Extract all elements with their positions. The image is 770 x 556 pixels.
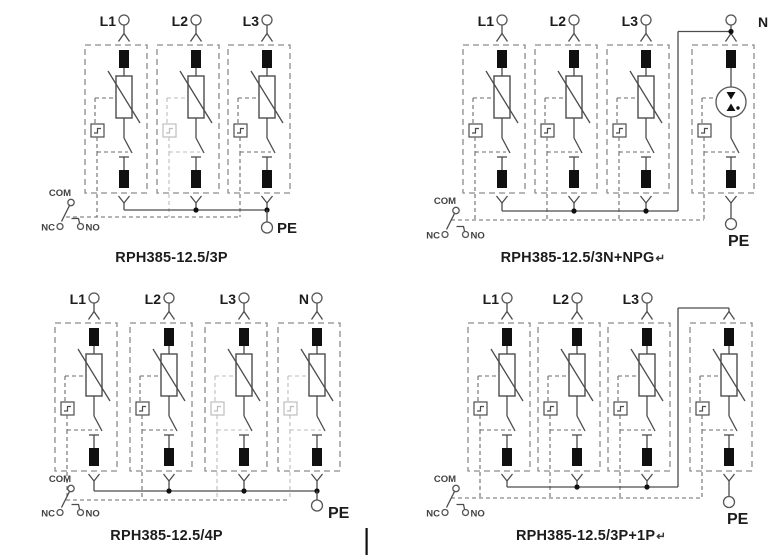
junction-dot (241, 488, 246, 493)
nc-label: NC (426, 231, 440, 242)
varistor-symbol (180, 68, 212, 138)
clamp-terminal (726, 170, 736, 188)
clamp-terminal (119, 50, 129, 68)
clamp-terminal (572, 328, 582, 346)
line-terminal: L2 (550, 13, 579, 34)
diagram-title: RPH385-12.5/3P+1P↵ (516, 528, 666, 544)
line-terminal: L1 (70, 291, 99, 312)
earth-bus-wire (507, 481, 678, 490)
module-N: N (692, 14, 768, 220)
pe-circle (726, 219, 737, 230)
com-label: COM (49, 188, 71, 199)
terminal-circle (312, 293, 322, 303)
disconnect-switch (642, 416, 655, 448)
gdt-symbol (716, 68, 746, 138)
clamp-terminal (502, 448, 512, 466)
diagram-title: RPH385-12.5/4P (110, 528, 223, 544)
varistor-symbol (251, 68, 283, 138)
terminal-label: L3 (220, 291, 237, 307)
line-terminal: L3 (623, 291, 652, 312)
disconnect-switch (164, 416, 177, 448)
terminal-circle (726, 15, 736, 25)
status-indicator-icon (698, 124, 711, 137)
status-indicator-icon (696, 402, 709, 415)
varistor-symbol (561, 346, 593, 416)
nc-contact (57, 510, 63, 516)
terminal-circle (262, 15, 272, 25)
module-L1: L1 (55, 291, 117, 500)
module-L2: L2 (130, 291, 192, 500)
clamp-terminal (569, 50, 579, 68)
no-contact (78, 510, 84, 516)
no-label: NO (471, 231, 485, 242)
status-indicator-icon (61, 402, 74, 415)
line-terminal: L2 (172, 13, 201, 34)
disconnect-switch (89, 416, 102, 448)
com-contact (68, 485, 74, 491)
clamp-terminal (312, 328, 322, 346)
pe-terminal: PE (724, 481, 749, 528)
junction-dot (643, 208, 648, 213)
varistor-symbol (491, 346, 523, 416)
clamp-terminal (191, 50, 201, 68)
junction-dot (574, 484, 579, 489)
disconnect-switch (191, 138, 204, 170)
varistor-symbol (228, 346, 260, 416)
status-indicator-icon (544, 402, 557, 415)
varistor-symbol (558, 68, 590, 138)
text-cursor-artifact (366, 528, 368, 555)
varistor-symbol (630, 68, 662, 138)
paragraph-mark: ↵ (656, 253, 666, 265)
module-aux (690, 312, 752, 499)
clamp-terminal (641, 170, 651, 188)
junction-dot (728, 29, 733, 34)
status-indicator-icon (284, 402, 297, 415)
terminal-circle (497, 15, 507, 25)
schematic-canvas: L1L2L3NPECOMNCNO (385, 0, 770, 278)
varistor-symbol (486, 68, 518, 138)
disconnect-switch (502, 416, 515, 448)
clamp-terminal (239, 328, 249, 346)
pe-terminal: PE (726, 203, 750, 250)
clamp-terminal (119, 170, 129, 188)
line-terminal: L3 (622, 13, 651, 34)
no-label: NO (86, 509, 100, 520)
pe-label: PE (728, 233, 750, 250)
disconnect-switch (312, 416, 325, 448)
terminal-label: L2 (550, 13, 567, 29)
disconnect-switch (262, 138, 275, 170)
module-L1: L1 (468, 291, 530, 498)
pe-terminal: PE (262, 210, 298, 237)
line-terminal: L2 (553, 291, 582, 312)
terminal-circle (89, 293, 99, 303)
disconnect-switch (119, 138, 132, 170)
varistor-symbol (108, 68, 140, 138)
terminal-label: L3 (623, 291, 640, 307)
terminal-label: L2 (553, 291, 570, 307)
clamp-terminal (724, 328, 734, 346)
varistor-symbol (631, 346, 663, 416)
schematic-canvas: L1L2L3NPECOMNCNO (0, 278, 385, 556)
remote-contact-switch: COMNCNO (426, 196, 484, 242)
diagram-rph385-12-5-3p-1p: L1L2L3PECOMNCNO RPH385-12.5/3P+1P↵ (385, 278, 770, 556)
disconnect-switch (497, 138, 510, 170)
no-label: NO (471, 509, 485, 520)
com-label: COM (434, 196, 456, 207)
neutral-feed-wire (678, 308, 729, 487)
varistor-symbol (78, 346, 110, 416)
no-contact (463, 232, 469, 238)
status-indicator-icon (211, 402, 224, 415)
com-label: COM (49, 474, 71, 485)
neutral-feed-wire (678, 29, 734, 211)
nc-contact (442, 510, 448, 516)
status-indicator-icon (474, 402, 487, 415)
title-text: RPH385-12.5/3N+NPG (501, 250, 655, 266)
terminal-label: L2 (172, 13, 189, 29)
paragraph-mark: ↵ (656, 531, 666, 543)
nc-label: NC (41, 223, 55, 234)
module-outline (692, 45, 754, 193)
diagram-title: RPH385-12.5/3P (115, 250, 228, 266)
terminal-circle (569, 15, 579, 25)
terminal-circle (502, 293, 512, 303)
clamp-terminal (502, 328, 512, 346)
clamp-terminal (497, 170, 507, 188)
title-text: RPH385-12.5/3P+1P (516, 528, 655, 544)
clamp-terminal (726, 50, 736, 68)
diagram-rph385-12-5-3n-npg: L1L2L3NPECOMNCNO RPH385-12.5/3N+NPG↵ (385, 0, 770, 278)
line-terminal: N (299, 291, 322, 312)
status-indicator-icon (163, 124, 176, 137)
pe-label: PE (277, 220, 297, 237)
junction-dot (193, 207, 198, 212)
nc-contact (57, 224, 63, 230)
com-label: COM (434, 474, 456, 485)
earth-bus-wire (124, 203, 270, 213)
clamp-terminal (191, 170, 201, 188)
terminal-label: L3 (243, 13, 260, 29)
disconnect-switch (641, 138, 654, 170)
clamp-terminal (642, 448, 652, 466)
diagram-title: RPH385-12.5/3N+NPG↵ (501, 250, 666, 266)
terminal-circle (191, 15, 201, 25)
remote-contact-switch: COMNCNO (426, 474, 484, 520)
varistor-symbol (713, 346, 745, 416)
varistor-symbol (153, 346, 185, 416)
clamp-terminal (262, 50, 272, 68)
status-indicator-icon (614, 402, 627, 415)
nc-contact (442, 232, 448, 238)
pe-terminal: PE (312, 491, 350, 522)
pe-circle (312, 500, 323, 511)
clamp-terminal (164, 328, 174, 346)
module-L3: L3 (205, 291, 267, 500)
earth-bus-wire (502, 203, 678, 214)
disconnect-switch (239, 416, 252, 448)
clamp-terminal (572, 448, 582, 466)
com-contact (453, 207, 459, 213)
line-terminal: L1 (478, 13, 507, 34)
disconnect-switch (724, 416, 737, 448)
module-L3: L3 (607, 13, 669, 220)
module-L1: L1 (463, 13, 525, 220)
junction-dot (571, 208, 576, 213)
module-L3: L3 (608, 291, 670, 498)
terminal-label: L2 (145, 291, 162, 307)
line-terminal: L1 (100, 13, 129, 34)
status-indicator-icon (469, 124, 482, 137)
pe-label: PE (727, 511, 749, 528)
line-terminal: L3 (243, 13, 272, 34)
clamp-terminal (497, 50, 507, 68)
nc-label: NC (426, 509, 440, 520)
clamp-terminal (312, 448, 322, 466)
module-L1: L1 (85, 13, 147, 217)
pe-label: PE (328, 505, 350, 522)
com-contact (453, 485, 459, 491)
clamp-terminal (641, 50, 651, 68)
status-indicator-icon (91, 124, 104, 137)
no-label: NO (86, 223, 100, 234)
remote-contact-switch: COMNCNO (41, 474, 99, 520)
status-indicator-icon (613, 124, 626, 137)
wiring-diagrams-sheet: L1L2L3PECOMNCNO RPH385-12.5/3P L1L2L3NPE… (0, 0, 770, 556)
title-text: RPH385-12.5/4P (110, 528, 222, 544)
clamp-terminal (642, 328, 652, 346)
pe-circle (724, 497, 735, 508)
disconnect-switch (569, 138, 582, 170)
terminal-label: L1 (70, 291, 87, 307)
clamp-terminal (262, 170, 272, 188)
disconnect-switch (572, 416, 585, 448)
module-L2: L2 (157, 13, 219, 217)
disconnect-switch (726, 138, 739, 170)
no-contact (78, 224, 84, 230)
clamp-terminal (724, 448, 734, 466)
terminal-circle (572, 293, 582, 303)
line-terminal: L2 (145, 291, 174, 312)
terminal-label: L1 (478, 13, 495, 29)
clamp-terminal (89, 328, 99, 346)
clamp-terminal (164, 448, 174, 466)
schematic-canvas: L1L2L3PECOMNCNO (0, 0, 385, 278)
module-L2: L2 (538, 291, 600, 498)
terminal-circle (239, 293, 249, 303)
schematic-canvas: L1L2L3PECOMNCNO (385, 278, 770, 556)
remote-contact-switch: COMNCNO (41, 188, 99, 234)
clamp-terminal (89, 448, 99, 466)
junction-dot (644, 484, 649, 489)
terminal-circle (119, 15, 129, 25)
terminal-label: N (299, 291, 309, 307)
nc-label: NC (41, 509, 55, 520)
clamp-terminal (239, 448, 249, 466)
line-terminal: L1 (483, 291, 512, 312)
diagram-rph385-12-5-3p: L1L2L3PECOMNCNO RPH385-12.5/3P (0, 0, 385, 278)
earth-bus-wire (94, 481, 320, 494)
varistor-symbol (301, 346, 333, 416)
diagram-rph385-12-5-4p: L1L2L3NPECOMNCNO RPH385-12.5/4P (0, 278, 385, 556)
clamp-terminal (569, 170, 579, 188)
terminal-label: L3 (622, 13, 639, 29)
junction-dot (166, 488, 171, 493)
terminal-label: L1 (100, 13, 117, 29)
line-terminal: L3 (220, 291, 249, 312)
module-L3: L3 (228, 13, 290, 217)
terminal-circle (642, 293, 652, 303)
terminal-label: N (758, 14, 768, 30)
module-L2: L2 (535, 13, 597, 220)
status-indicator-icon (234, 124, 247, 137)
terminal-circle (641, 15, 651, 25)
com-contact (68, 199, 74, 205)
module-N: N (278, 291, 340, 500)
status-indicator-icon (541, 124, 554, 137)
no-contact (463, 510, 469, 516)
terminal-circle (164, 293, 174, 303)
title-text: RPH385-12.5/3P (115, 250, 227, 266)
terminal-label: L1 (483, 291, 500, 307)
pe-circle (262, 222, 273, 233)
status-indicator-icon (136, 402, 149, 415)
